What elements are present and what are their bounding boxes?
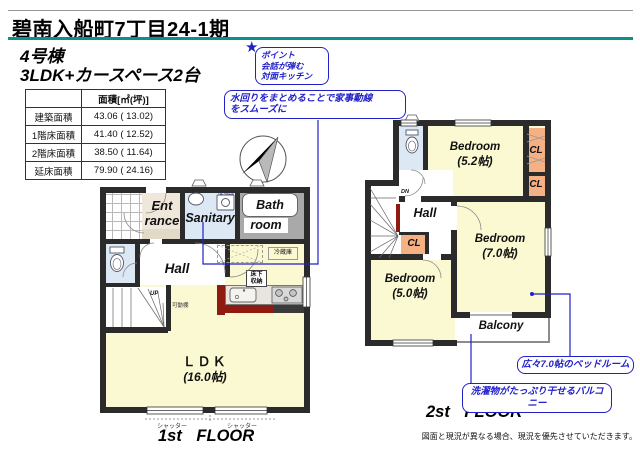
balcony-rail	[457, 341, 550, 343]
wall-segment	[106, 239, 150, 244]
bath-label: Bath	[242, 198, 298, 212]
floor1-plan: 冷蔵庫 床下 収納 可動棚 UP 洗濯機	[100, 185, 310, 415]
fridge-label: 冷蔵庫	[268, 247, 298, 260]
bedroom-label-line: Bedroom	[385, 273, 435, 285]
toilet2-room	[399, 126, 425, 170]
floor1-caption: 1st FLOOR	[158, 427, 254, 446]
bedroom-70-label: Bedroom (7.0帖)	[455, 232, 545, 262]
stairs-dn-label: DN	[401, 189, 409, 195]
wall-segment	[166, 285, 171, 331]
bedroom-50-label: Bedroom (5.0帖)	[370, 272, 450, 302]
stairs-area	[104, 287, 168, 329]
bathroom-label: room	[242, 218, 290, 232]
disclaimer-text: 図面と現況が異なる場合、現況を優先させていただきます。	[422, 431, 637, 442]
stove-front	[274, 305, 304, 313]
ldk-size-label: (16.0帖)	[160, 368, 250, 385]
sanitary-label: Sanitary	[180, 211, 240, 225]
table-corner-cell	[26, 90, 82, 108]
wall-segment	[162, 239, 182, 244]
floor-storage-line2: 収納	[250, 279, 262, 285]
point-line2: 会話が弾む	[261, 61, 304, 71]
kitchen-counter-front	[217, 305, 274, 313]
bedroom-size-line: (5.0帖)	[392, 288, 427, 300]
closet-label: CL	[525, 179, 547, 190]
row-label: 延床面積	[26, 162, 82, 180]
entrance-label-line1: Ent	[152, 198, 173, 213]
wall-segment	[100, 187, 106, 413]
wall-segment	[106, 327, 168, 333]
wall-segment	[100, 187, 310, 193]
wall-segment	[135, 243, 140, 287]
balcony-label: Balcony	[461, 320, 541, 332]
door-opening	[405, 196, 421, 202]
entrance-porch	[104, 189, 142, 239]
row-label: 2階床面積	[26, 144, 82, 162]
floor-storage-line1: 床下	[250, 272, 262, 278]
balcony-window-opening	[470, 312, 512, 318]
wall-segment	[304, 187, 310, 413]
toilet-room	[104, 243, 137, 287]
balcony-rail	[548, 318, 550, 343]
stairs2-area	[370, 186, 399, 260]
entrance-step	[142, 229, 182, 239]
point-line1: ポイント	[261, 50, 295, 60]
point-line3: 対面キッチン	[261, 71, 312, 81]
row-value: 41.40 ( 12.52)	[82, 126, 166, 144]
door-opening	[451, 206, 457, 230]
point-callout: ポイント 会話が弾む 対面キッチン	[255, 47, 329, 85]
washer-label: 洗濯機	[216, 192, 236, 200]
plan-type: 3LDK+カースペース2台	[20, 61, 200, 86]
front-door-opening	[146, 187, 166, 193]
wall-segment	[365, 340, 457, 346]
wall-segment	[523, 172, 551, 176]
upper-cabinet	[217, 245, 263, 263]
wall-segment	[100, 407, 310, 413]
entrance-label: Ent rance	[140, 199, 184, 229]
teal-rule	[8, 37, 633, 40]
floor2-plan: Bedroom (5.2帖) Bedroom (7.0帖) Bedroom (5…	[365, 108, 560, 350]
bedroom-size-line: (5.2帖)	[457, 156, 492, 168]
wall-segment	[106, 283, 140, 287]
row-value: 38.50 ( 11.64)	[82, 144, 166, 162]
floorplan-page: 碧南入船町7丁目24-1期 4号棟 3LDK+カースペース2台 面積[㎡(坪)]…	[0, 0, 640, 452]
top-rule	[8, 10, 633, 11]
row-value: 43.06 ( 13.02)	[82, 108, 166, 126]
bedroom7-callout: 広々7.0帖のベッドルーム	[517, 356, 634, 374]
mizumawari-line1: 水回りをまとめることで家事動線	[230, 93, 372, 104]
entrance-label-line2: rance	[145, 213, 180, 228]
bedroom-size-line: (7.0帖)	[482, 248, 517, 260]
area-table: 面積[㎡(坪)] 建築面積 43.06 ( 13.02) 1階床面積 41.40…	[25, 89, 166, 180]
closet-label: CL	[401, 238, 427, 249]
mizumawari-callout: 水回りをまとめることで家事動線 をスムーズに	[224, 90, 406, 119]
floor-storage-box: 床下 収納	[246, 270, 267, 287]
wall-segment	[399, 232, 427, 235]
table-row: 面積[㎡(坪)]	[26, 90, 166, 108]
hall2-label: Hall	[403, 206, 447, 220]
bedroom-label-line: Bedroom	[450, 141, 500, 153]
row-label: 建築面積	[26, 108, 82, 126]
balcony-callout: 洗濯物がたっぷり干せるバルコニー	[462, 383, 612, 413]
row-value: 79.90 ( 24.16)	[82, 162, 166, 180]
table-row: 建築面積 43.06 ( 13.02)	[26, 108, 166, 126]
wall-segment	[180, 239, 310, 244]
stairs-up-label: UP	[150, 291, 158, 297]
row-label: 1階床面積	[26, 126, 82, 144]
mizumawari-line2: をスムーズに	[230, 104, 287, 115]
stairs-banister	[396, 204, 400, 232]
north-compass-icon	[238, 132, 290, 188]
door-opening	[423, 254, 441, 260]
kitchen-counter	[225, 285, 304, 305]
hall-label: Hall	[142, 261, 212, 276]
star-icon: ★	[245, 38, 258, 56]
table-row: 延床面積 79.90 ( 24.16)	[26, 162, 166, 180]
wall-segment	[365, 180, 371, 346]
bedroom-52-label: Bedroom (5.2帖)	[427, 140, 523, 170]
wall-segment	[370, 254, 455, 260]
movable-shelf-label: 可動棚	[172, 301, 189, 309]
wall-segment	[393, 120, 399, 186]
table-row: 2階床面積 38.50 ( 11.64)	[26, 144, 166, 162]
table-col-header: 面積[㎡(坪)]	[82, 90, 166, 108]
bedroom-label-line: Bedroom	[475, 233, 525, 245]
closet-label: CL	[525, 145, 547, 156]
table-row: 1階床面積 41.40 ( 12.52)	[26, 126, 166, 144]
